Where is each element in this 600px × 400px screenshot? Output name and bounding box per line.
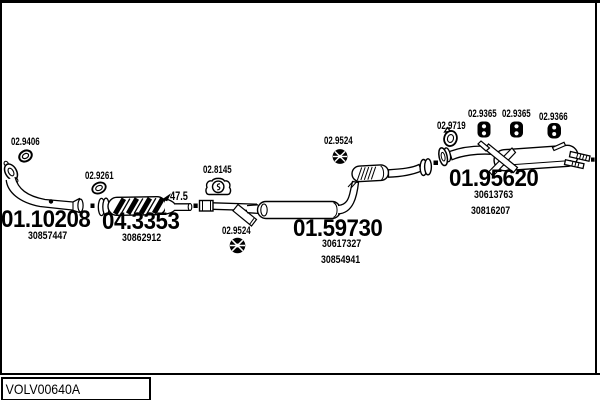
frame-border-right xyxy=(595,0,597,375)
fitting-code-label: 02.9365 xyxy=(502,109,542,120)
drawing-reference: VOLV00640A xyxy=(3,381,80,397)
rubber-hanger-icon xyxy=(548,123,562,139)
fitting-code-label: 02.9406 xyxy=(11,137,51,148)
fitting-code-label: 02.8145 xyxy=(203,165,243,176)
frame-border-left xyxy=(0,0,2,375)
oem-number-label: 30857447 xyxy=(28,231,77,242)
frame-border-top xyxy=(0,0,600,3)
rubber-mount-icon xyxy=(230,238,246,254)
front-downpipe-drawing xyxy=(0,159,94,213)
fitting-code-label: 02.9366 xyxy=(539,112,579,123)
fitting-code-label: 02.9719 xyxy=(437,121,477,132)
rubber-hanger-icon xyxy=(510,122,523,138)
part-code-label: 04.3353 xyxy=(102,210,185,234)
flange-gasket-icon xyxy=(17,148,34,164)
rubber-hanger-icon xyxy=(206,178,231,194)
oem-number-label: 30816207 xyxy=(471,206,520,217)
oem-number-label: 30617327 xyxy=(322,239,371,250)
drawing-reference-box: VOLV00640A xyxy=(1,377,151,400)
oem-number-label: 30862912 xyxy=(122,233,171,244)
oem-number-label: 30613763 xyxy=(474,190,523,201)
ring-gasket-icon xyxy=(90,180,107,195)
part-code-label: 01.95620 xyxy=(449,167,545,191)
fitting-code-label: 02.9524 xyxy=(222,226,262,237)
exhaust-parts-diagram: 02.9406 02.9261 02.8145 02.9524 02.9524 … xyxy=(0,0,600,400)
part-code-label: 01.10208 xyxy=(1,208,97,232)
oem-number-label: 30854941 xyxy=(321,255,370,266)
fitting-code-label: 02.9524 xyxy=(324,136,364,147)
fitting-code-label: 02.9261 xyxy=(85,171,125,182)
rubber-hanger-icon xyxy=(478,122,491,138)
rubber-mount-icon xyxy=(333,149,348,164)
flex-resonator-drawing xyxy=(352,159,432,182)
dimension-label: 47.5 xyxy=(170,192,192,204)
rear-flange-drawing xyxy=(434,146,453,166)
middle-muffler-drawing xyxy=(247,181,359,219)
frame-border-bottom xyxy=(0,373,600,375)
